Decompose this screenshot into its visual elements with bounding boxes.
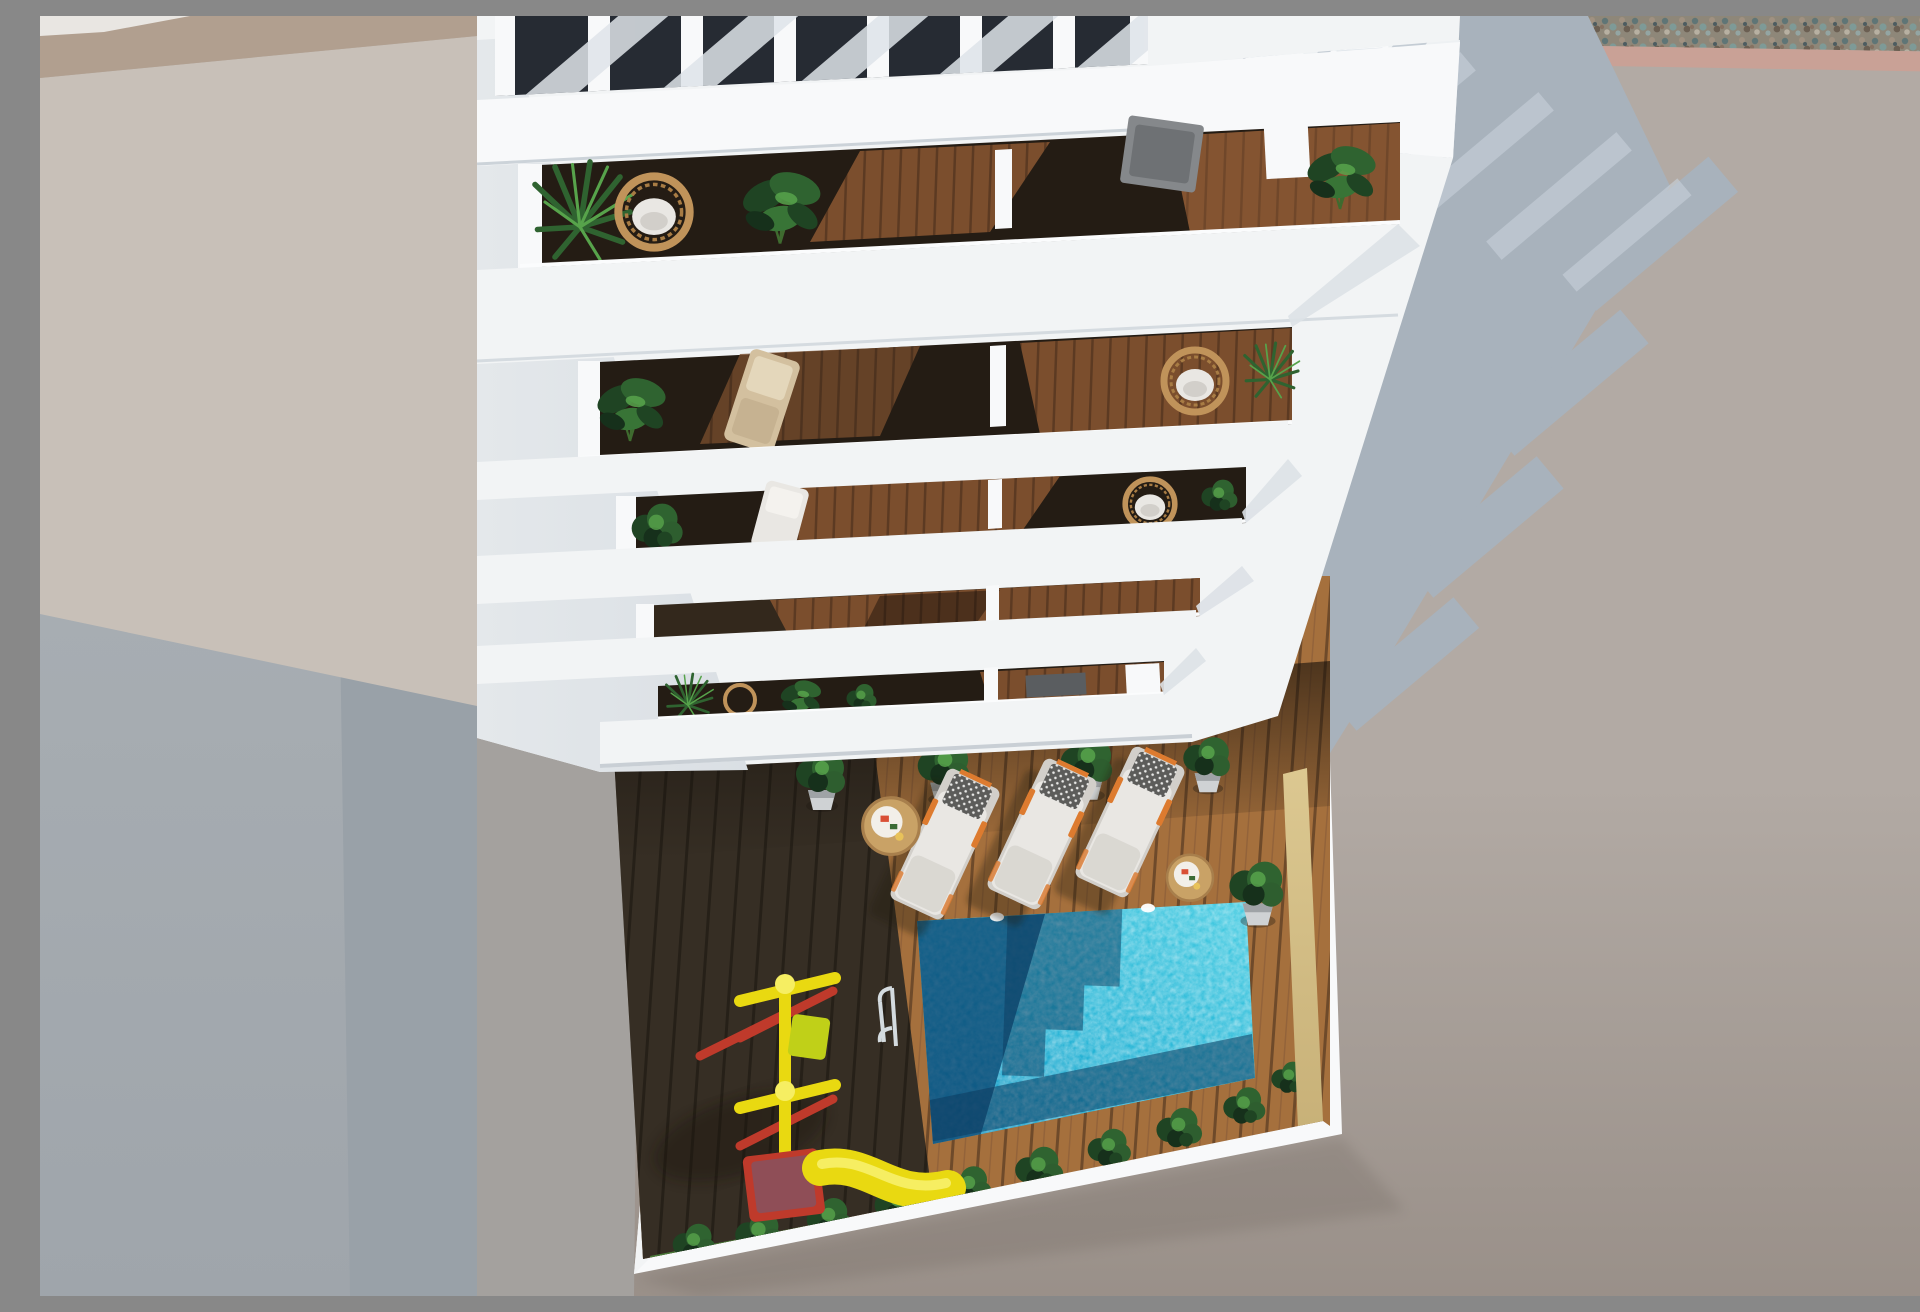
pool-light-2: [1141, 904, 1155, 913]
row3-divider: [988, 479, 1002, 529]
render-viewport: Aerial top-down 3D rendering of a white …: [40, 16, 1920, 1296]
swing-seat: [787, 1014, 830, 1061]
row1-planter: [1264, 119, 1311, 179]
row2-end-wall: [578, 361, 600, 459]
row5-planter: [1125, 663, 1161, 695]
row2-divider: [990, 345, 1006, 427]
gravel-strip: [1585, 16, 1920, 52]
scene-svg: [40, 16, 1920, 1296]
row1-divider: [995, 149, 1012, 229]
climber-joint-top: [775, 974, 795, 994]
row1-end-wall: [518, 164, 542, 268]
row5-divider: [984, 667, 998, 703]
row4-divider: [986, 585, 999, 623]
lower-wall-corner: [340, 631, 477, 1296]
row1-gray-chair: [1120, 115, 1205, 193]
side-table-2: [1167, 855, 1213, 901]
side-table-1: [863, 798, 920, 855]
row5-dark-furniture: [1025, 672, 1086, 697]
climber-joint-mid: [775, 1081, 795, 1101]
